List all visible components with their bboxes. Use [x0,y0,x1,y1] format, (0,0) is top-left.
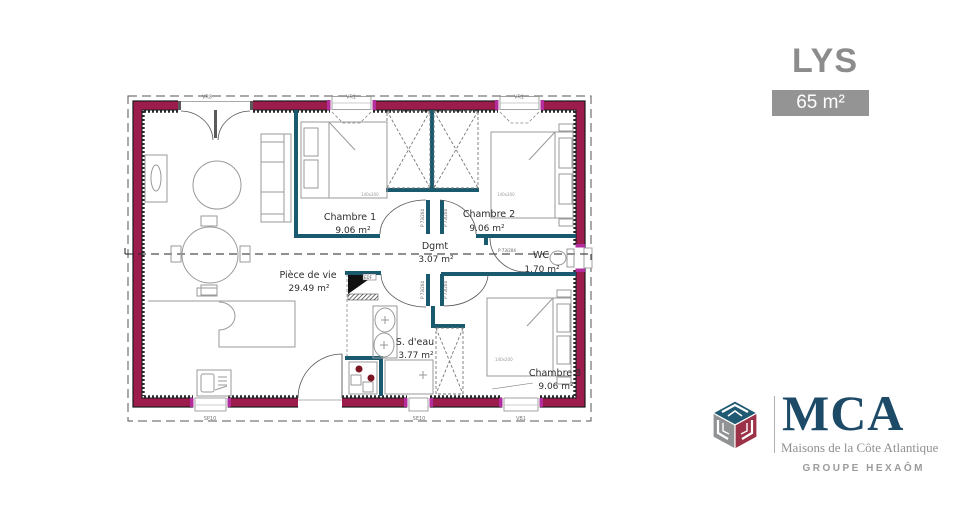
room-area-chambre1: 9.06 m² [335,226,371,236]
room-area-piece-de-vie: 29.49 m² [288,284,329,294]
logo-separator [774,396,775,453]
area-badge-text: 65 m² [796,92,845,114]
opening-label-sp10-right: SP10 [592,252,593,265]
edf-label: EDF [364,275,373,280]
brand-tagline: Maisons de la Côte Atlantique [781,440,938,456]
window-bottom-mid [404,398,433,412]
room-area-chambre2: 9.06 m² [469,224,505,234]
floor-plan: Chambre 1 9.06 m² Chambre 2 9.06 m² Dgmt… [123,88,593,438]
opening-label-vb1: VB1 [516,416,526,422]
brand-name: MCA [782,388,904,438]
room-label-piece-de-vie: Pièce de vie [279,270,336,281]
room-area-sdeau: 3.77 m² [398,351,434,361]
room-label-chambre3: Chambre 3 [529,368,581,379]
opening-label-sp10-bottom: SP10 [204,416,217,422]
bed-size-chambre2: 140x200 [497,192,515,197]
opening-label-vr8: VR8 [202,95,212,101]
mca-cube-icon [706,395,764,455]
window-wc-right [576,244,593,272]
room-label-chambre2: Chambre 2 [463,209,515,220]
floor-plan-svg: Chambre 1 9.06 m² Chambre 2 9.06 m² Dgmt… [123,88,593,433]
room-label-sdeau: S. d'eau [396,337,434,348]
room-area-chambre3: 9.06 m² [538,382,574,392]
bed-size-chambre3: 140x200 [495,357,513,362]
brand-group: GROUPE HEXAÔM [781,463,925,474]
opening-label-vr1-right: VR1 [514,95,524,101]
door-label-3: P 73/204 [420,281,425,299]
door-label-2: P 73/204 [443,209,448,227]
opening-label-vr1-mid: VR1 [346,95,356,101]
door-label-wc: P 73/204 [498,248,516,253]
room-area-wc: 1.70 m² [524,265,560,275]
room-label-dgmt: Dgmt [422,241,449,252]
bed-size-chambre1: 140x200 [361,192,379,197]
area-badge: 65 m² [772,90,869,116]
room-area-dgmt: 3.07 m² [418,255,454,265]
window-bottom-left [190,398,231,412]
window-bottom-right [499,398,543,412]
model-name: LYS [792,42,858,81]
mca-logo [706,395,764,460]
room-label-wc: WC [533,250,549,261]
page: { "title": { "model": "LYS", "area": "65… [0,0,960,532]
opening-label-se10: SE10 [413,416,426,422]
door-label-4: P 73/204 [443,281,448,299]
door-label-1: P 73/204 [420,209,425,227]
room-label-chambre1: Chambre 1 [324,212,376,223]
